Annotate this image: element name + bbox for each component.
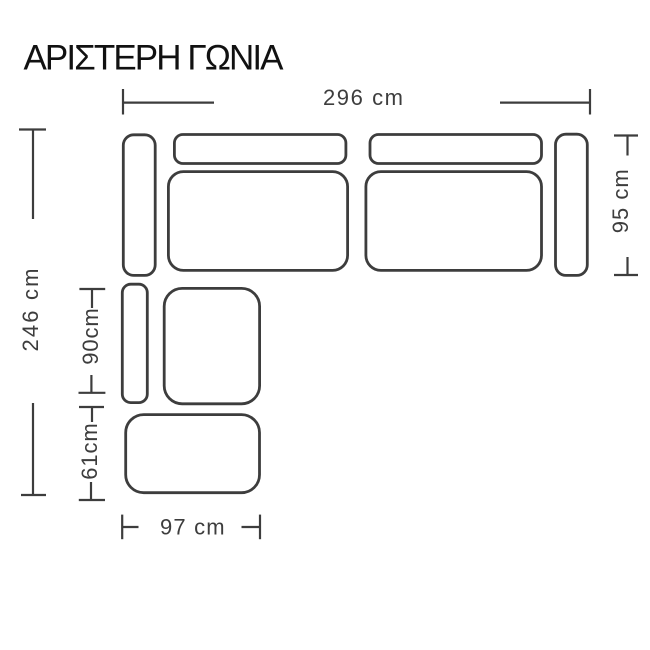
svg-text:61cm: 61cm	[77, 423, 102, 480]
svg-text:ΑΡΙΣΤΕΡΗ ΓΩΝΙΑ: ΑΡΙΣΤΕΡΗ ΓΩΝΙΑ	[24, 39, 285, 78]
svg-text:90cm: 90cm	[78, 308, 103, 365]
svg-text:97 cm: 97 cm	[160, 515, 225, 540]
svg-text:95 cm: 95 cm	[608, 169, 633, 233]
